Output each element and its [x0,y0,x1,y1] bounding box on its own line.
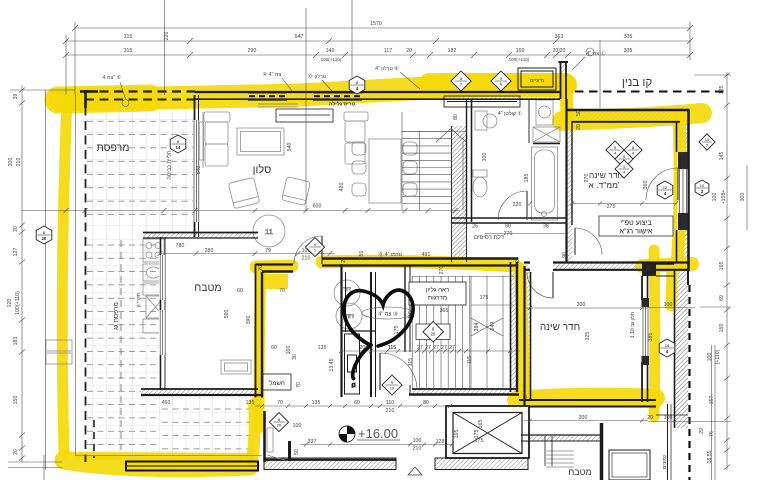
svg-text:בז: בז [351,383,357,388]
svg-text:210: 210 [302,256,311,262]
svg-text:מדרגות: מדרגות [428,295,447,302]
svg-text:אישור רג"א: אישור רג"א [620,227,653,236]
svg-text:12: 12 [663,185,668,190]
svg-text:חדר שינה: חדר שינה [540,322,580,333]
svg-text:18: 18 [665,343,670,348]
svg-text:165: 165 [478,420,484,429]
svg-text:590: 590 [224,310,230,319]
svg-text:20: 20 [646,265,652,271]
svg-text:100: 100 [664,302,673,308]
svg-text:540: 540 [196,166,202,175]
svg-text:80: 80 [505,224,511,230]
svg-text:160: 160 [516,48,525,54]
svg-text:460: 460 [162,400,171,406]
svg-text:60: 60 [271,345,277,351]
svg-text:20: 20 [13,226,19,232]
svg-text:300: 300 [740,193,746,202]
svg-text:ראה גליון: ראה גליון [426,286,449,294]
svg-text:18.55: 18.55 [707,450,713,463]
svg-text:100(+110): 100(+110) [321,57,342,62]
svg-text:④ 4" צמ: ④ 4" צמ [263,72,282,78]
svg-text:128: 128 [436,439,445,445]
svg-text:150: 150 [13,396,19,405]
svg-text:69: 69 [719,295,725,301]
svg-text:315: 315 [124,34,133,40]
svg-text:280: 280 [205,248,214,254]
svg-text:39: 39 [13,94,19,100]
svg-text:Ⓑ טרלון: Ⓑ טרלון [308,72,327,80]
svg-text:Ⓑ טרמו "4: Ⓑ טרמו "4 [378,250,402,258]
svg-text:4" טרלון ⑥: 4" טרלון ⑥ [375,65,399,72]
svg-text:20: 20 [515,257,521,263]
svg-text:160: 160 [719,324,725,333]
svg-text:183: 183 [13,337,19,346]
svg-text:165: 165 [454,430,460,439]
svg-text:70: 70 [279,288,285,294]
svg-text:140: 140 [326,48,335,54]
svg-text:20|20: 20|20 [553,48,566,54]
svg-text:טריס גלילה: טריס גלילה [329,101,356,108]
svg-text:70: 70 [296,382,302,388]
svg-text:29: 29 [699,428,705,434]
svg-text:50: 50 [294,449,300,455]
svg-text:70: 70 [277,400,283,406]
svg-text:תליית כביסה: תליית כביסה [166,150,173,179]
svg-text:80: 80 [453,114,459,120]
svg-text:110: 110 [386,400,394,406]
svg-text:27: 27 [433,345,439,351]
svg-text:דוד: דוד [346,314,354,320]
svg-text:390: 390 [246,316,252,325]
svg-text:135: 135 [246,400,255,406]
svg-text:10: 10 [390,386,395,391]
svg-text:290: 290 [248,48,257,54]
svg-text:20: 20 [258,265,264,271]
svg-text:165: 165 [719,262,725,271]
svg-text:14: 14 [176,145,181,150]
svg-text:25: 25 [472,224,478,230]
svg-text:50: 50 [576,110,582,116]
svg-text:185: 185 [524,174,530,183]
svg-text:100(+110): 100(+110) [15,291,21,315]
svg-text:20: 20 [576,124,582,130]
svg-text:4" צמ ③: 4" צמ ③ [378,311,398,318]
svg-text:337: 337 [308,439,317,445]
svg-text:135: 135 [318,345,327,351]
svg-text:36: 36 [543,224,549,230]
svg-text:מרפסת: מרפסת [97,142,130,154]
svg-text:10: 10 [700,183,705,188]
svg-text:120: 120 [7,299,13,308]
svg-text:175: 175 [474,430,480,439]
svg-text:20: 20 [13,449,19,455]
svg-text:182: 182 [448,48,457,54]
svg-text:20: 20 [523,395,529,401]
svg-text:300: 300 [579,415,588,421]
svg-text:360: 360 [643,181,649,190]
svg-text:27: 27 [441,345,447,351]
svg-text:100: 100 [293,423,302,429]
svg-text:115: 115 [388,345,396,351]
svg-text:491: 491 [422,252,431,258]
svg-text:220: 220 [164,32,170,41]
svg-text:סלון: סלון [253,163,272,176]
svg-text:305: 305 [624,48,633,54]
svg-text:300: 300 [577,302,586,308]
svg-text:305: 305 [624,34,633,40]
svg-text:1570: 1570 [370,21,382,27]
svg-text:220: 220 [513,202,522,208]
svg-text:300: 300 [482,153,488,162]
svg-text:270: 270 [439,266,445,275]
svg-text:נדוניים: נדוניים [530,78,544,84]
svg-text:20: 20 [647,415,653,421]
svg-text:284: 284 [474,323,480,332]
svg-text:210: 210 [413,446,422,452]
svg-text:20: 20 [42,236,47,241]
svg-text:540: 540 [287,143,293,152]
svg-text:20: 20 [277,423,282,428]
svg-text:385: 385 [648,333,654,342]
svg-text:20: 20 [341,257,347,263]
svg-text:60: 60 [354,400,360,406]
svg-text:547: 547 [295,34,304,40]
svg-text:קולטן "4 ①: קולטן "4 ① [498,110,523,117]
svg-text:20: 20 [431,332,436,337]
svg-text:60: 60 [237,288,243,294]
svg-text:דלת רסיסים: דלת רסיסים [474,233,505,241]
svg-text:11: 11 [265,227,273,236]
svg-text:100: 100 [712,193,718,202]
svg-text:270: 270 [504,231,513,237]
svg-text:275: 275 [607,204,616,210]
svg-text:100: 100 [707,353,713,362]
svg-text:175: 175 [480,295,489,301]
svg-text:מטבח: מטבח [194,282,221,294]
svg-text:קו בנין: קו בנין [622,77,653,89]
svg-text:100: 100 [413,438,422,444]
svg-text:210: 210 [386,408,395,414]
svg-text:חדרי ון: חדרי ון [136,293,142,307]
svg-text:300: 300 [8,158,14,167]
svg-text:210: 210 [16,158,22,167]
svg-text:100: 100 [664,415,673,421]
svg-text:20: 20 [406,48,412,54]
svg-text:90: 90 [562,252,568,258]
svg-text:27: 27 [425,345,431,351]
svg-text:145: 145 [719,152,725,161]
svg-text:420: 420 [339,183,345,192]
svg-text:ממ"ד. א': ממ"ד. א' [588,180,619,190]
svg-text:600: 600 [313,204,322,210]
svg-text:30: 30 [292,354,298,360]
svg-text:נמוכים: נמוכים [662,455,668,469]
svg-text:325: 325 [585,332,591,341]
svg-text:157: 157 [709,396,715,405]
svg-text:+108+: +108+ [721,190,727,205]
svg-text:חשמל: חשמל [269,379,285,387]
svg-text:315: 315 [124,48,133,54]
svg-text:100(+110): 100(+110) [509,57,530,62]
svg-text:365: 365 [440,308,449,314]
svg-text:76: 76 [709,431,715,437]
svg-text:363: 363 [555,34,564,40]
svg-text:100: 100 [286,346,292,355]
svg-text:+16.00: +16.00 [358,426,398,441]
svg-text:27: 27 [417,345,423,351]
svg-text:249: 249 [490,322,496,331]
svg-text:135: 135 [312,400,321,406]
svg-text:חלון גב 1.10: חלון גב 1.10 [629,312,636,338]
svg-text:13.45: 13.45 [329,358,335,371]
svg-text:מרפסת גג: מרפסת גג [113,302,120,330]
svg-text:115: 115 [408,358,414,366]
svg-text:125: 125 [719,86,725,95]
svg-text:10: 10 [705,137,710,142]
svg-text:150: 150 [359,251,365,260]
svg-text:79: 79 [265,248,271,254]
svg-text:117: 117 [384,48,392,54]
svg-text:780: 780 [176,243,185,249]
svg-text:115: 115 [467,356,473,364]
svg-text:127: 127 [13,248,19,257]
svg-text:צמ 4" ①: צמ 4" ① [103,75,122,81]
svg-text:27: 27 [449,345,455,351]
svg-text:80: 80 [423,400,429,406]
svg-text:מטבח: מטבח [568,467,591,477]
svg-text:(+110): (+110) [715,349,721,364]
